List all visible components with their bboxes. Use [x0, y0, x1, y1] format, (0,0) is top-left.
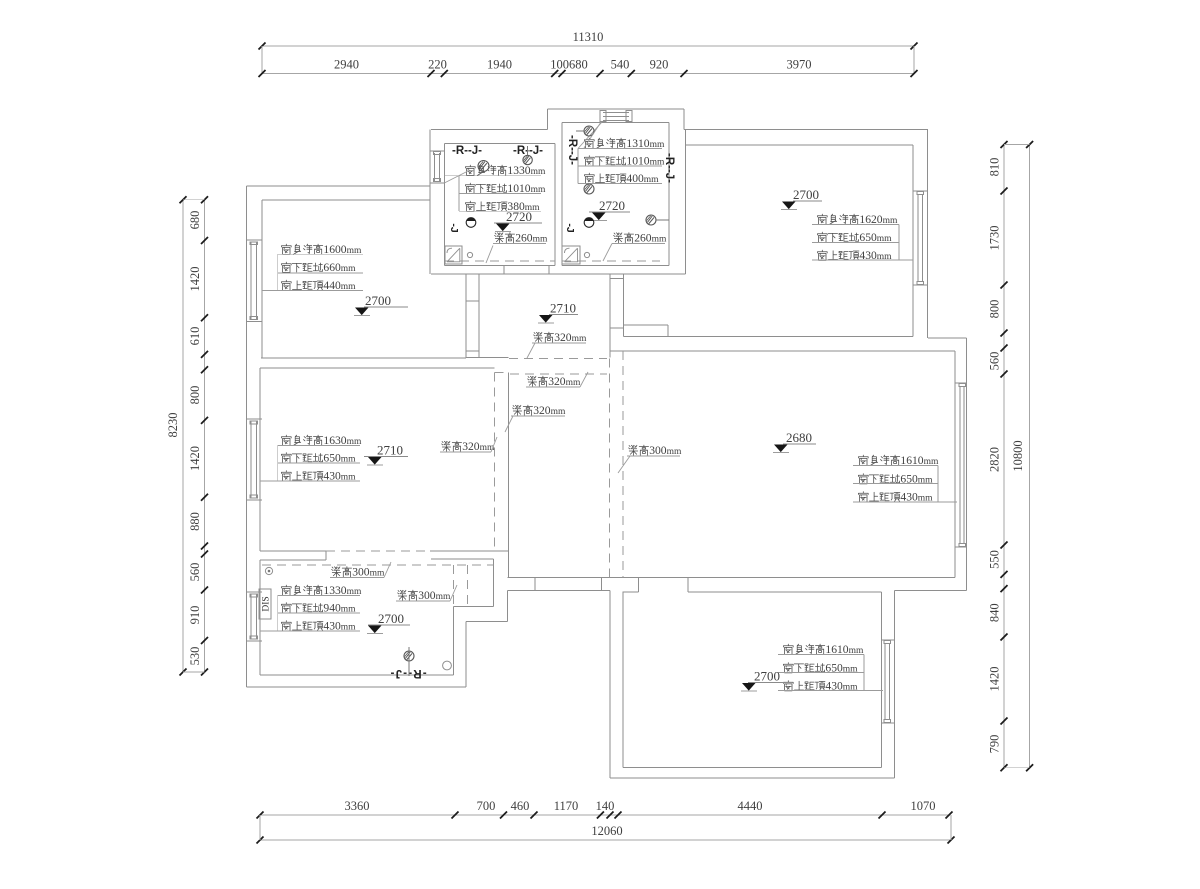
svg-text:8230: 8230 — [166, 413, 180, 438]
svg-text:1630mm: 1630mm — [323, 434, 362, 447]
svg-text:1310mm: 1310mm — [626, 137, 665, 150]
svg-text:800: 800 — [988, 300, 1002, 319]
svg-text:2700: 2700 — [793, 187, 819, 202]
svg-text:2940: 2940 — [334, 58, 359, 72]
svg-text:300mm: 300mm — [352, 565, 385, 578]
svg-text:1070: 1070 — [911, 799, 936, 813]
svg-text:-J: -J — [448, 223, 460, 232]
svg-text:260mm: 260mm — [515, 231, 548, 244]
svg-text:4440: 4440 — [738, 799, 763, 813]
svg-text:1940: 1940 — [487, 58, 512, 72]
svg-text:1330mm: 1330mm — [323, 584, 362, 597]
svg-text:1010mm: 1010mm — [507, 182, 546, 195]
svg-text:400mm: 400mm — [626, 172, 659, 185]
svg-text:260mm: 260mm — [634, 231, 667, 244]
svg-text:700: 700 — [477, 799, 496, 813]
svg-text:2820: 2820 — [988, 447, 1002, 472]
svg-text:2710: 2710 — [550, 301, 576, 316]
svg-text:2700: 2700 — [365, 293, 391, 308]
svg-text:1610mm: 1610mm — [825, 643, 864, 656]
svg-text:1420: 1420 — [188, 446, 202, 471]
svg-text:610: 610 — [188, 327, 202, 346]
svg-text:1730: 1730 — [988, 226, 1002, 251]
svg-text:1610mm: 1610mm — [900, 454, 939, 467]
svg-text:2700: 2700 — [378, 611, 404, 626]
svg-text:2720: 2720 — [506, 209, 532, 224]
svg-text:300mm: 300mm — [649, 444, 682, 457]
svg-text:320mm: 320mm — [554, 331, 587, 344]
svg-text:680: 680 — [188, 211, 202, 230]
svg-text:1010mm: 1010mm — [626, 154, 665, 167]
svg-text:2680: 2680 — [786, 430, 812, 445]
svg-text:-J: -J — [564, 223, 576, 232]
svg-text:430mm: 430mm — [323, 619, 356, 632]
svg-text:430mm: 430mm — [900, 490, 933, 503]
svg-text:920: 920 — [650, 58, 669, 72]
svg-text:1420: 1420 — [188, 267, 202, 292]
svg-text:2700: 2700 — [754, 669, 780, 684]
svg-text:1170: 1170 — [554, 799, 579, 813]
svg-text:650mm: 650mm — [323, 451, 356, 464]
svg-text:650mm: 650mm — [859, 231, 892, 244]
svg-text:DIS: DIS — [262, 596, 272, 611]
svg-text:320mm: 320mm — [548, 375, 581, 388]
svg-text:1330mm: 1330mm — [507, 164, 546, 177]
svg-text:940mm: 940mm — [323, 601, 356, 614]
svg-text:910: 910 — [188, 606, 202, 625]
svg-text:540: 540 — [611, 58, 630, 72]
svg-text:2720: 2720 — [599, 198, 625, 213]
svg-text:880: 880 — [188, 512, 202, 531]
svg-text:3360: 3360 — [345, 799, 370, 813]
svg-text:11310: 11310 — [573, 30, 604, 44]
svg-text:1420: 1420 — [988, 667, 1002, 692]
svg-text:220: 220 — [428, 58, 447, 72]
svg-text:12060: 12060 — [591, 824, 622, 838]
svg-text:800: 800 — [188, 386, 202, 405]
svg-text:810: 810 — [988, 158, 1002, 177]
svg-text:560: 560 — [188, 563, 202, 582]
svg-text:790: 790 — [988, 735, 1002, 754]
svg-text:1620mm: 1620mm — [859, 213, 898, 226]
svg-text:2710: 2710 — [377, 443, 403, 458]
svg-text:840: 840 — [988, 603, 1002, 622]
svg-text:660mm: 660mm — [323, 261, 356, 274]
svg-text:140: 140 — [596, 799, 615, 813]
svg-text:3970: 3970 — [787, 58, 812, 72]
svg-text:550: 550 — [988, 550, 1002, 569]
svg-text:-R--J-: -R--J- — [389, 667, 426, 679]
svg-text:560: 560 — [988, 352, 1002, 371]
svg-text:-R--J-: -R--J- — [452, 145, 482, 157]
svg-text:320mm: 320mm — [533, 404, 566, 417]
svg-text:-R--J-: -R--J- — [566, 135, 578, 165]
svg-text:430mm: 430mm — [323, 469, 356, 482]
svg-text:530: 530 — [188, 647, 202, 666]
svg-text:320mm: 320mm — [462, 440, 495, 453]
svg-text:100680: 100680 — [550, 58, 588, 72]
svg-text:10800: 10800 — [1011, 440, 1025, 471]
svg-text:-R--J-: -R--J- — [663, 153, 675, 183]
svg-text:300mm: 300mm — [418, 589, 451, 602]
svg-text:460: 460 — [511, 799, 530, 813]
